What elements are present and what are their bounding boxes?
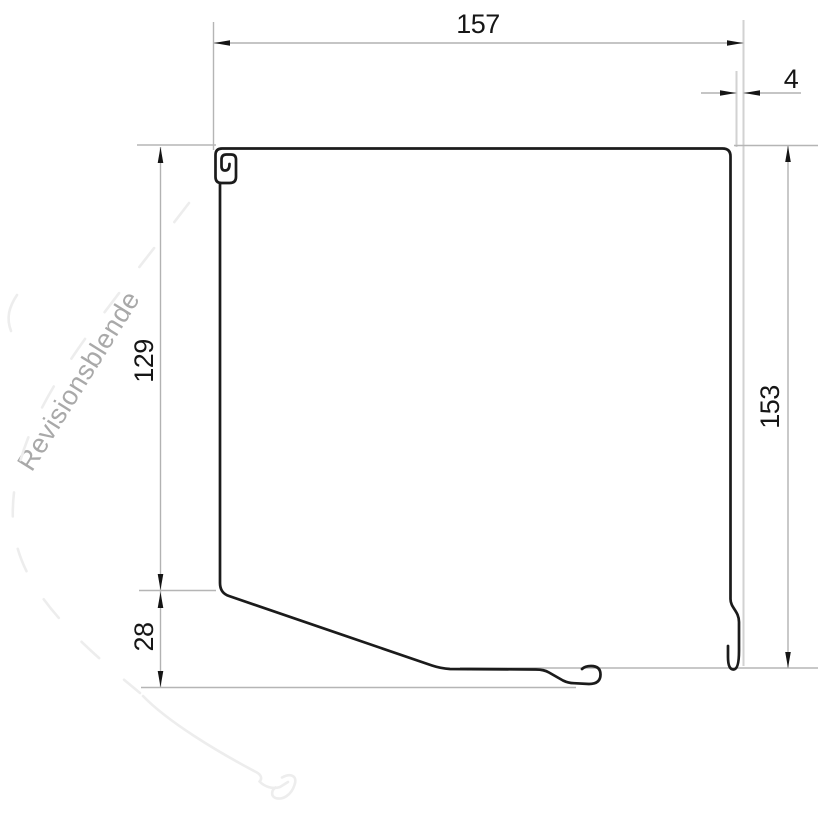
dimension-top-width: 157 <box>214 9 744 46</box>
arrow-up-icon <box>158 592 164 608</box>
ghost-hook-curl <box>272 775 295 798</box>
ghost-profile-watermark-curves <box>9 203 296 799</box>
arrow-up-icon <box>158 147 164 163</box>
ghost-small-dash <box>9 295 17 331</box>
profile-left-and-bottom-edge <box>220 184 601 684</box>
arrow-down-icon <box>158 574 164 590</box>
dim-label-129: 129 <box>129 339 159 383</box>
arrow-right-icon <box>720 90 736 95</box>
arrow-left-icon <box>744 90 760 95</box>
dim-label-28: 28 <box>129 622 159 651</box>
arrow-right-icon <box>727 40 743 45</box>
arrow-left-icon <box>214 40 230 45</box>
arrow-down-icon <box>785 652 791 668</box>
extension-lines <box>137 20 818 688</box>
arrow-up-icon <box>785 146 791 162</box>
ghost-bottom-curve <box>143 696 288 788</box>
profile-outline <box>216 149 740 685</box>
dim-label-153: 153 <box>755 385 785 429</box>
dim-label-157: 157 <box>456 9 500 39</box>
dim-label-4: 4 <box>784 64 799 94</box>
arrow-down-icon <box>158 671 164 687</box>
technical-drawing-page: Revisionsblende 157 <box>0 0 822 819</box>
profile-top-and-right-edge <box>216 149 740 670</box>
technical-drawing-canvas: 157 4 129 28 153 <box>0 0 822 819</box>
ghost-dashed-arc <box>13 203 189 693</box>
dimension-right-offset: 4 <box>701 64 801 96</box>
dimension-right-height: 153 <box>755 146 791 668</box>
dimension-left-upper-height: 129 <box>129 147 163 590</box>
dimension-left-lower-height: 28 <box>129 591 163 687</box>
